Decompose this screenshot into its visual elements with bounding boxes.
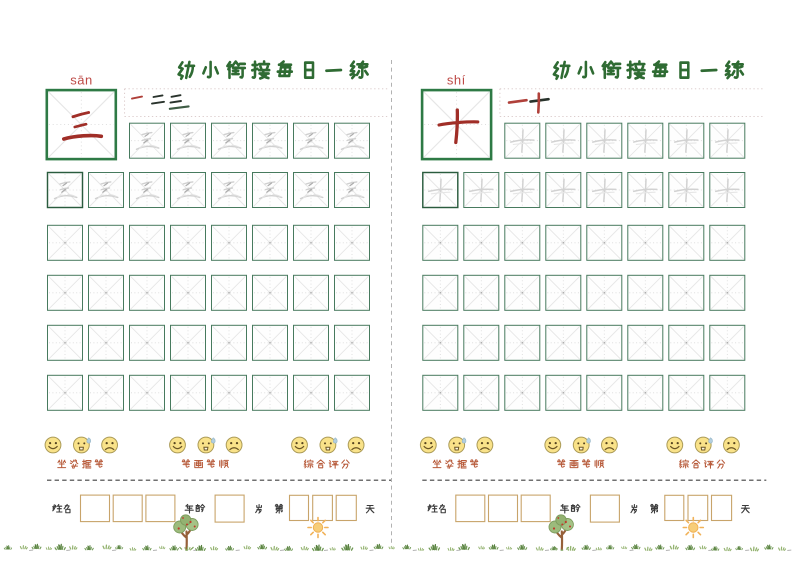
- svg-text:sān: sān: [70, 73, 92, 88]
- svg-text:shí: shí: [447, 73, 466, 88]
